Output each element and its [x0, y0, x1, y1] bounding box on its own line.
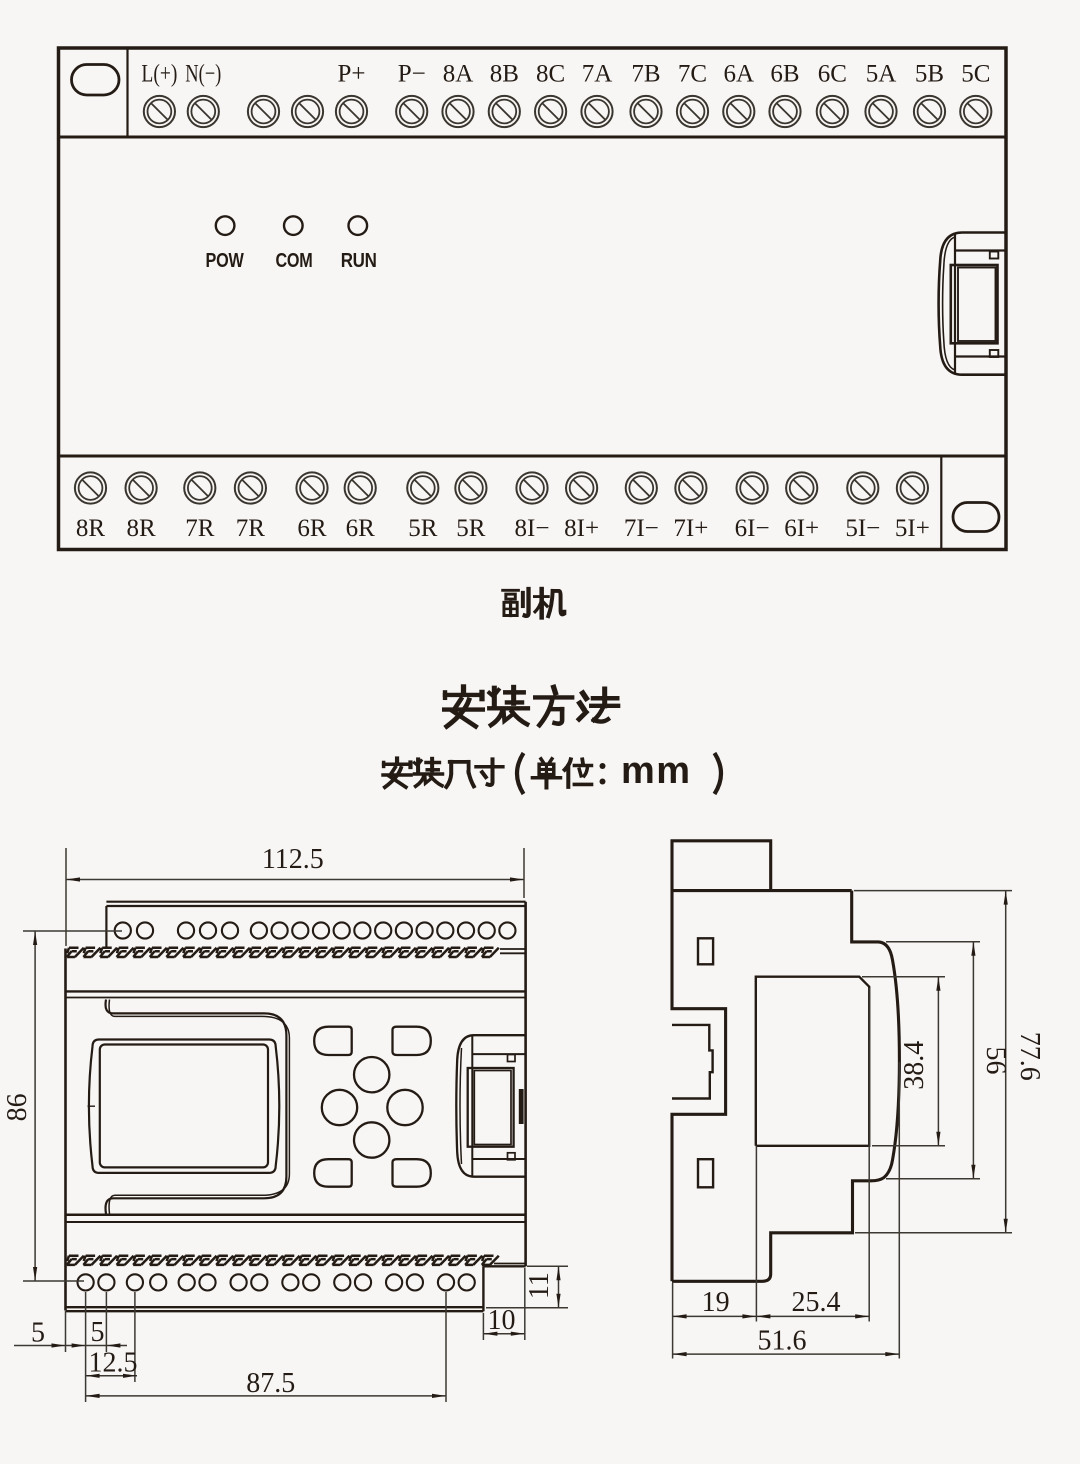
- svg-text:7A: 7A: [582, 61, 613, 88]
- svg-text:8I−: 8I−: [515, 515, 550, 542]
- svg-text:mm: mm: [621, 750, 692, 792]
- svg-text:11: 11: [524, 1272, 555, 1299]
- svg-text:6C: 6C: [818, 61, 847, 88]
- svg-text:6I−: 6I−: [735, 515, 770, 542]
- svg-text:77.6: 77.6: [1014, 1032, 1045, 1081]
- svg-text:6A: 6A: [724, 61, 755, 88]
- svg-text:5A: 5A: [866, 61, 897, 88]
- svg-text:5R: 5R: [456, 515, 486, 542]
- svg-text:7C: 7C: [678, 61, 707, 88]
- svg-text:12.5: 12.5: [89, 1348, 138, 1379]
- svg-text:38.4: 38.4: [899, 1041, 930, 1090]
- svg-text:5I−: 5I−: [845, 515, 880, 542]
- svg-text:8A: 8A: [443, 61, 474, 88]
- svg-text:COM: COM: [276, 250, 313, 272]
- svg-text:8R: 8R: [127, 515, 157, 542]
- svg-text:L(+): L(+): [141, 61, 177, 88]
- svg-text:86: 86: [2, 1093, 33, 1121]
- svg-text:6B: 6B: [770, 61, 799, 88]
- svg-text:P+: P+: [337, 61, 365, 88]
- svg-text:6I+: 6I+: [784, 515, 819, 542]
- svg-text:5I+: 5I+: [895, 515, 930, 542]
- svg-text:5R: 5R: [408, 515, 438, 542]
- svg-text:10: 10: [488, 1305, 516, 1336]
- svg-text:POW: POW: [206, 250, 244, 272]
- svg-text:P−: P−: [398, 61, 426, 88]
- svg-text:5: 5: [91, 1317, 105, 1348]
- svg-text:7B: 7B: [631, 61, 660, 88]
- svg-text:7I−: 7I−: [624, 515, 659, 542]
- svg-text:8R: 8R: [76, 515, 106, 542]
- svg-text:7R: 7R: [236, 515, 266, 542]
- svg-text:8I+: 8I+: [564, 515, 599, 542]
- svg-text:19: 19: [702, 1287, 730, 1318]
- svg-text:RUN: RUN: [341, 250, 377, 272]
- svg-text:5B: 5B: [915, 61, 944, 88]
- svg-text:8B: 8B: [490, 61, 519, 88]
- svg-text:8C: 8C: [536, 61, 565, 88]
- svg-text:25.4: 25.4: [792, 1287, 841, 1318]
- svg-text:51.6: 51.6: [758, 1326, 807, 1357]
- svg-text:7R: 7R: [185, 515, 215, 542]
- svg-text:7I+: 7I+: [673, 515, 708, 542]
- svg-text:87.5: 87.5: [246, 1368, 295, 1399]
- svg-text:5: 5: [31, 1318, 45, 1349]
- svg-text:6R: 6R: [297, 515, 327, 542]
- svg-text:112.5: 112.5: [262, 844, 324, 875]
- svg-text:56: 56: [980, 1047, 1011, 1075]
- svg-text:N(−): N(−): [185, 61, 221, 88]
- svg-text:6R: 6R: [346, 515, 376, 542]
- svg-text:5C: 5C: [961, 61, 990, 88]
